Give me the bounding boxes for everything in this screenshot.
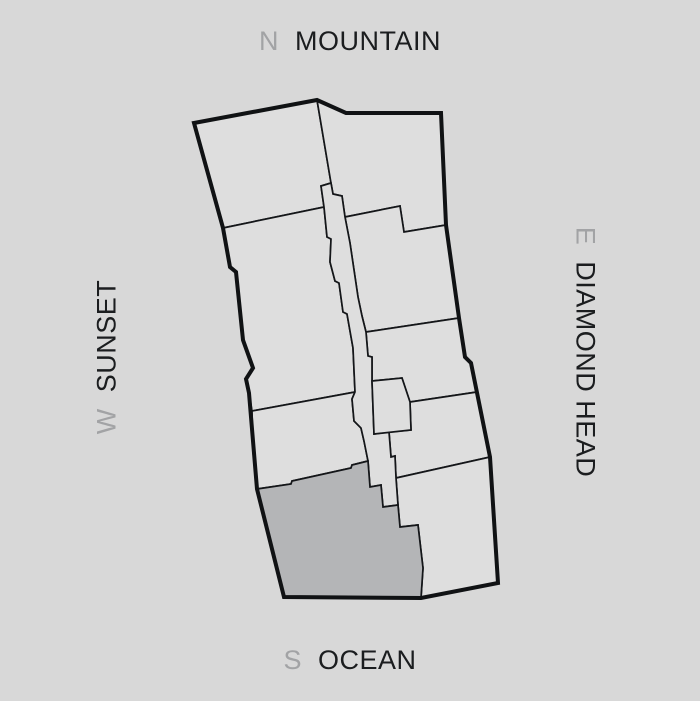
elevator-core-shape	[372, 378, 411, 434]
keyplan-stage: NMOUNTAIN SOCEAN WSUNSET EDIAMOND HEAD	[0, 0, 700, 701]
floor-plan-svg	[0, 0, 700, 701]
